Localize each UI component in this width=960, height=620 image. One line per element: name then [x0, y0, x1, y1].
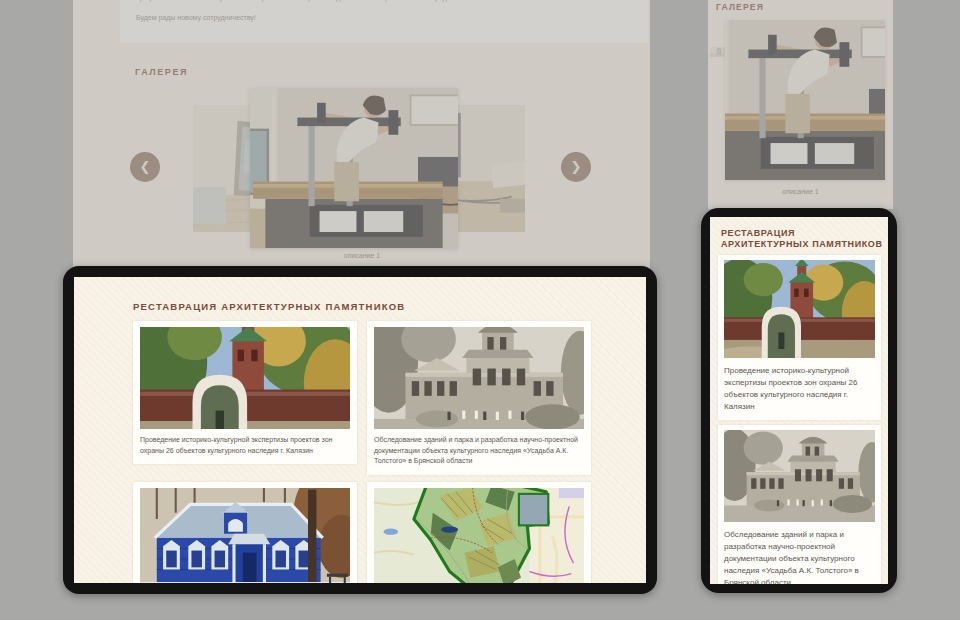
restoration-card[interactable]: Проведение историко-культурной экспертиз… — [133, 321, 357, 464]
restoration-card[interactable]: Обследование зданий и парка и разработка… — [718, 425, 881, 584]
chevron-right-icon: ❯ — [571, 159, 582, 174]
mobile-preview-frame: РЕСТАВРАЦИЯ АРХИТЕКТУРНЫХ ПАМЯТНИКОВ Про… — [701, 208, 897, 593]
chevron-left-icon: ❮ — [140, 159, 151, 174]
manor-archive-photo — [374, 327, 584, 429]
restoration-card[interactable]: Проведение историко-культурной экспертиз… — [718, 255, 881, 420]
restoration-card[interactable] — [133, 482, 357, 583]
slide-caption: описание 1 — [120, 252, 604, 259]
manor-archive-photo — [724, 430, 875, 522]
protected-territory-map — [374, 488, 584, 583]
intro-text-line1: профессиональным и современным музейным … — [136, 0, 454, 1]
church-gate-photo — [724, 260, 875, 358]
book-scanner-restoration-photo — [250, 88, 458, 248]
carousel-prev-button[interactable]: ❮ — [130, 152, 160, 182]
blue-wooden-house-photo — [140, 488, 350, 583]
restoration-card[interactable] — [367, 482, 591, 583]
carousel-next-button[interactable]: ❯ — [561, 152, 591, 182]
mobile-gallery-slide-current[interactable] — [725, 20, 885, 180]
mobile-gallery-slide-previous — [710, 43, 725, 177]
studio-interior-photo — [710, 47, 725, 57]
restoration-card[interactable]: Обследование зданий и парка и разработка… — [367, 321, 591, 475]
intro-text-line2: Будем рады новому сотрудничеству! — [136, 14, 256, 21]
restoration-title: РЕСТАВРАЦИЯ АРХИТЕКТУРНЫХ ПАМЯТНИКОВ — [721, 228, 883, 251]
church-gate-photo — [140, 327, 350, 429]
restoration-title: РЕСТАВРАЦИЯ АРХИТЕКТУРНЫХ ПАМЯТНИКОВ — [133, 301, 405, 312]
intro-section: профессиональным и современным музейным … — [120, 0, 648, 43]
responsive-preview-stage: профессиональным и современным музейным … — [0, 0, 960, 620]
mobile-screen: РЕСТАВРАЦИЯ АРХИТЕКТУРНЫХ ПАМЯТНИКОВ Про… — [710, 217, 888, 584]
gallery-slide-current[interactable] — [250, 88, 458, 248]
tablet-screen: РЕСТАВРАЦИЯ АРХИТЕКТУРНЫХ ПАМЯТНИКОВ Про… — [74, 277, 646, 583]
mobile-slide-caption: описание 1 — [708, 188, 893, 195]
mobile-gallery-title: ГАЛЕРЕЯ — [716, 2, 764, 12]
card-caption: Проведение историко-культурной экспертиз… — [724, 365, 875, 413]
tablet-preview-frame: РЕСТАВРАЦИЯ АРХИТЕКТУРНЫХ ПАМЯТНИКОВ Про… — [63, 266, 657, 594]
card-caption: Обследование зданий и парка и разработка… — [724, 529, 875, 584]
book-scanner-restoration-photo — [725, 20, 885, 180]
card-caption: Проведение историко-культурной экспертиз… — [140, 435, 350, 456]
mobile-preview-top: ГАЛЕРЕЯ описание 1 — [708, 0, 893, 209]
card-caption: Обследование зданий и парка и разработка… — [374, 435, 584, 467]
